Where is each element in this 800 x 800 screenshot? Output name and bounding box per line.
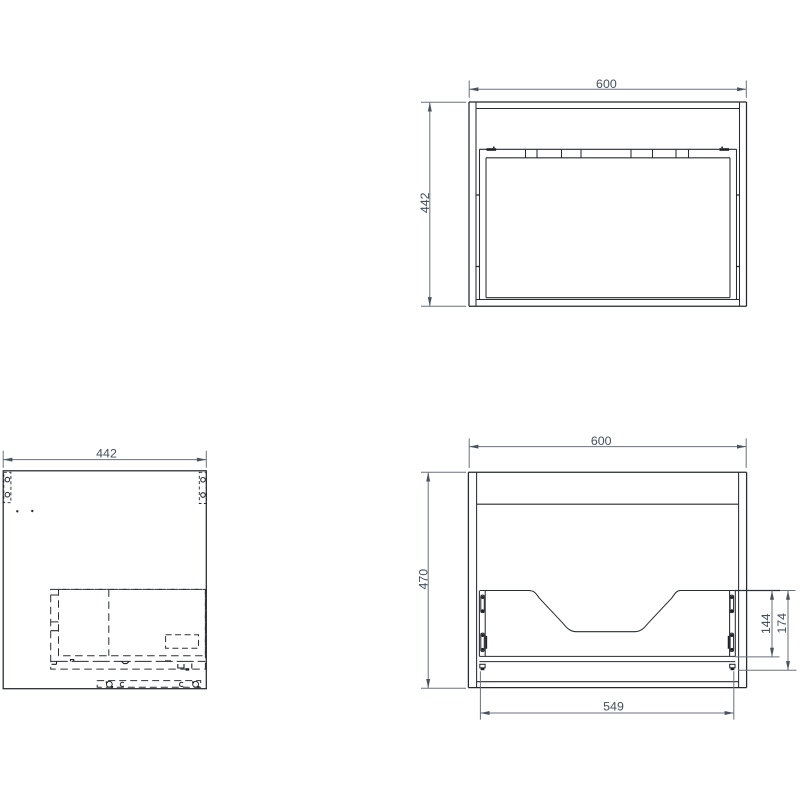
svg-text:442: 442 [418, 192, 432, 213]
svg-text:470: 470 [417, 569, 431, 590]
svg-text:174: 174 [775, 613, 789, 634]
svg-text:600: 600 [596, 77, 617, 91]
svg-text:442: 442 [96, 446, 117, 460]
svg-text:144: 144 [759, 613, 773, 634]
svg-text:600: 600 [591, 434, 612, 448]
svg-text:549: 549 [603, 699, 624, 713]
